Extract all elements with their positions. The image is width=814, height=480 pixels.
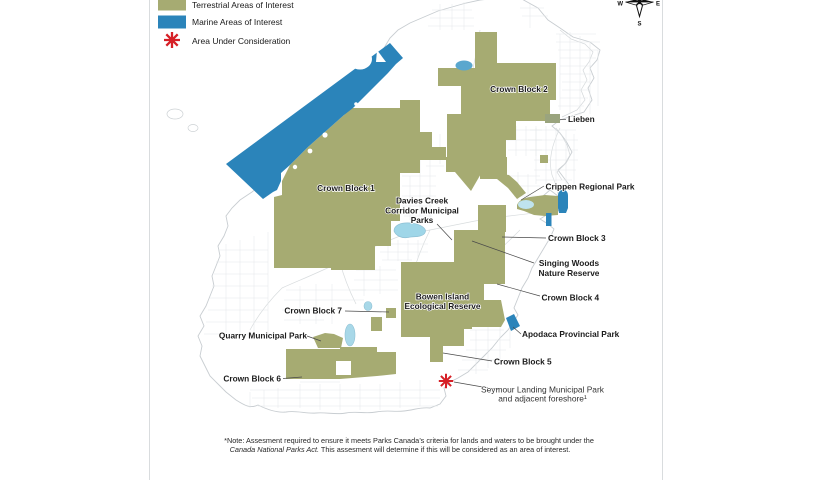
svg-text:Crown Block 6: Crown Block 6 [223, 374, 281, 384]
svg-text:Nature Reserve: Nature Reserve [539, 268, 600, 278]
svg-text:Quarry Municipal Park: Quarry Municipal Park [219, 331, 307, 341]
svg-text:Crown Block 7: Crown Block 7 [284, 306, 342, 316]
svg-text:E: E [656, 2, 660, 8]
svg-text:Crown Block 2: Crown Block 2 [490, 84, 548, 94]
svg-text:Davies Creek: Davies Creek [396, 196, 449, 206]
svg-text:Area Under Consideration: Area Under Consideration [192, 36, 291, 46]
svg-text:Corridor Municipal: Corridor Municipal [385, 206, 459, 216]
svg-text:Apodaca Provincial Park: Apodaca Provincial Park [522, 329, 620, 339]
svg-text:Canada National Parks Act. Thi: Canada National Parks Act. This assesmen… [230, 445, 571, 454]
svg-text:Crown Block 4: Crown Block 4 [542, 293, 600, 303]
svg-text:Crown Block 3: Crown Block 3 [548, 233, 606, 243]
svg-text:Ecological Reserve: Ecological Reserve [404, 301, 480, 311]
svg-text:Parks: Parks [411, 215, 434, 225]
svg-text:Marine Areas of Interest: Marine Areas of Interest [192, 17, 283, 27]
svg-text:Bowen Island: Bowen Island [416, 292, 469, 302]
svg-text:Lieben: Lieben [568, 114, 595, 124]
svg-text:Terrestrial Areas of Interest: Terrestrial Areas of Interest [192, 0, 294, 10]
svg-text:Crippen Regional Park: Crippen Regional Park [546, 182, 635, 192]
svg-text:S: S [637, 22, 641, 28]
svg-text:Crown Block 1: Crown Block 1 [317, 183, 375, 193]
svg-text:Singing Woods: Singing Woods [539, 258, 600, 268]
svg-text:W: W [617, 2, 623, 8]
svg-text:*Note: Assesment required to e: *Note: Assesment required to ensure it m… [224, 436, 594, 445]
svg-text:Crown Block 5: Crown Block 5 [494, 357, 552, 367]
svg-text:and adjacent foreshore¹: and adjacent foreshore¹ [498, 394, 587, 404]
